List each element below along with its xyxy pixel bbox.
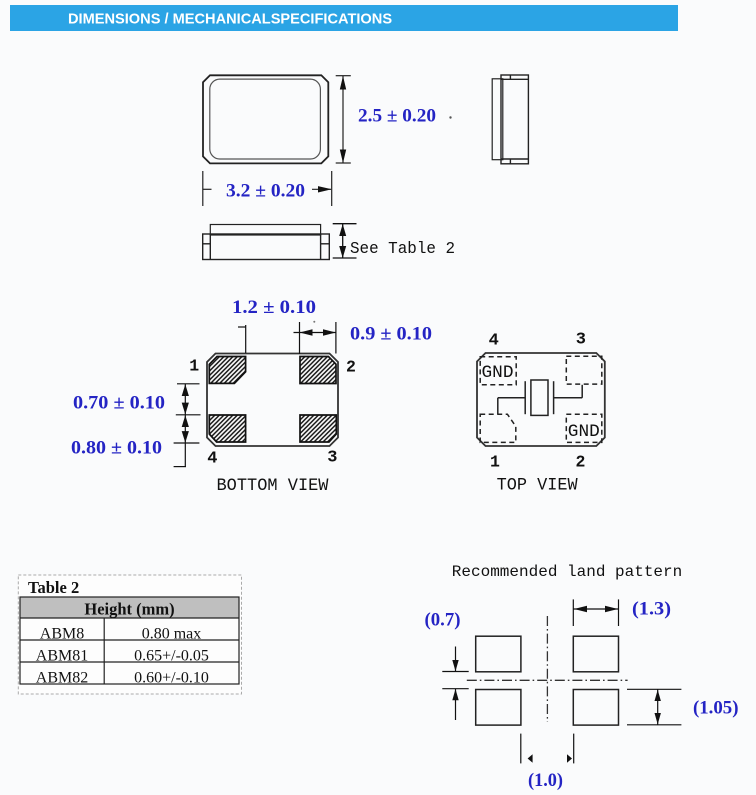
svg-text:2: 2 <box>576 453 586 472</box>
svg-text:0.60+/-0.10: 0.60+/-0.10 <box>134 669 209 686</box>
svg-text:ABM8: ABM8 <box>40 625 84 642</box>
svg-text:2.5 ± 0.20: 2.5 ± 0.20 <box>358 106 436 127</box>
svg-text:(0.7): (0.7) <box>425 610 461 631</box>
svg-text:4: 4 <box>489 332 499 351</box>
svg-text:DIMENSIONS / MECHANICALSPECIFI: DIMENSIONS / MECHANICALSPECIFICATIONS <box>68 12 392 28</box>
svg-text:Recommended land pattern: Recommended land pattern <box>452 563 682 581</box>
svg-text:ABM81: ABM81 <box>36 647 88 664</box>
svg-text:GND: GND <box>482 363 514 383</box>
svg-text:0.80 ± 0.10: 0.80 ± 0.10 <box>71 438 162 459</box>
svg-text:3: 3 <box>576 331 586 350</box>
svg-text:TOP VIEW: TOP VIEW <box>497 476 578 496</box>
svg-text:3: 3 <box>327 449 337 468</box>
svg-text:4: 4 <box>207 450 217 469</box>
svg-text:GND: GND <box>568 422 600 442</box>
svg-text:1: 1 <box>490 453 500 472</box>
svg-text:(1.05): (1.05) <box>693 698 739 719</box>
svg-text:Height (mm): Height (mm) <box>84 600 174 619</box>
svg-text:1: 1 <box>189 356 199 375</box>
svg-text:0.9 ± 0.10: 0.9 ± 0.10 <box>350 324 432 345</box>
svg-text:3.2 ± 0.20: 3.2 ± 0.20 <box>226 181 305 202</box>
svg-text:(1.3): (1.3) <box>632 599 671 620</box>
svg-text:Table 2: Table 2 <box>28 578 79 597</box>
svg-text:1.2 ± 0.10: 1.2 ± 0.10 <box>232 297 316 318</box>
svg-text:0.65+/-0.05: 0.65+/-0.05 <box>134 647 209 664</box>
svg-text:0.80 max: 0.80 max <box>142 625 202 642</box>
svg-text:See Table 2: See Table 2 <box>350 239 455 258</box>
svg-text:BOTTOM VIEW: BOTTOM VIEW <box>217 476 329 496</box>
svg-text:ABM82: ABM82 <box>36 669 88 686</box>
svg-text:0.70 ± 0.10: 0.70 ± 0.10 <box>73 393 165 414</box>
svg-text:(1.0): (1.0) <box>528 770 563 791</box>
svg-text:2: 2 <box>346 358 356 377</box>
